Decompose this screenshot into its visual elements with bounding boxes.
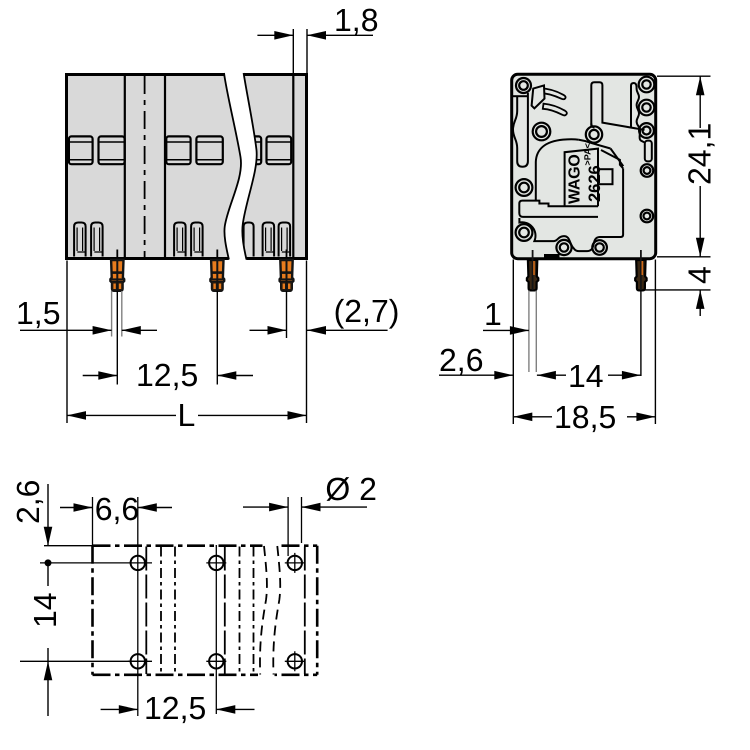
svg-text:2626: 2626 xyxy=(586,165,604,202)
svg-text:1,8: 1,8 xyxy=(334,2,378,38)
svg-text:18,5: 18,5 xyxy=(554,399,616,435)
svg-text:(2,7): (2,7) xyxy=(334,293,400,329)
svg-text:6,6: 6,6 xyxy=(95,491,139,527)
svg-text:14: 14 xyxy=(568,358,604,394)
svg-text:14: 14 xyxy=(27,592,63,628)
svg-text:4: 4 xyxy=(682,266,718,284)
svg-text:WAGO: WAGO xyxy=(567,155,584,204)
svg-text:12,5: 12,5 xyxy=(136,357,198,393)
svg-text:2,6: 2,6 xyxy=(10,480,46,524)
svg-text:1: 1 xyxy=(484,296,502,332)
svg-text:L: L xyxy=(178,397,196,433)
svg-text:>PA<: >PA< xyxy=(583,143,593,165)
svg-text:Ø 2: Ø 2 xyxy=(325,471,377,507)
svg-text:1,5: 1,5 xyxy=(16,295,60,331)
svg-text:2,6: 2,6 xyxy=(439,342,483,378)
svg-text:12,5: 12,5 xyxy=(144,690,206,726)
svg-text:24,1: 24,1 xyxy=(682,123,718,185)
